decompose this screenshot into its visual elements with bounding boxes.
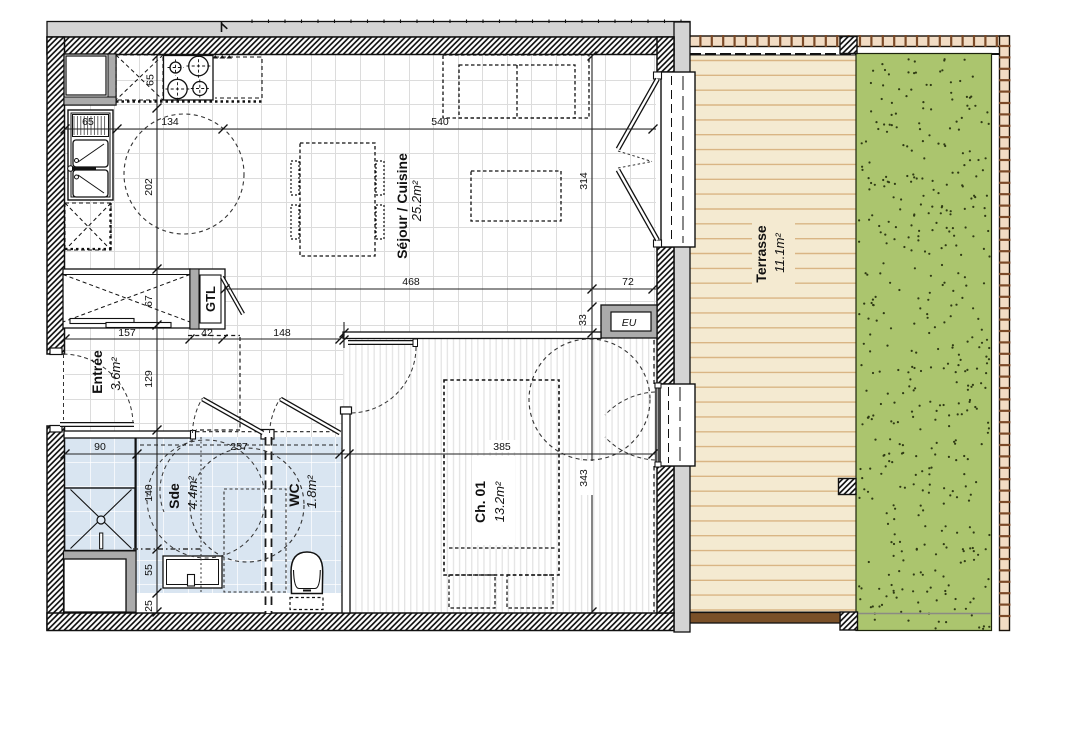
svg-text:4.4m²: 4.4m² — [185, 476, 200, 510]
svg-text:Ch. 01: Ch. 01 — [472, 481, 488, 523]
svg-text:148: 148 — [273, 327, 291, 339]
svg-text:Terrasse: Terrasse — [753, 225, 769, 283]
svg-text:3.6m²: 3.6m² — [108, 357, 123, 391]
svg-text:42: 42 — [201, 327, 213, 339]
svg-text:25.2m²: 25.2m² — [409, 180, 424, 222]
svg-text:55: 55 — [143, 564, 155, 576]
svg-text:WC: WC — [286, 483, 302, 506]
svg-text:468: 468 — [402, 276, 420, 288]
svg-text:385: 385 — [493, 441, 511, 453]
svg-text:157: 157 — [118, 327, 136, 339]
svg-text:72: 72 — [622, 276, 634, 288]
svg-text:67: 67 — [143, 295, 155, 307]
svg-text:Sde: Sde — [166, 483, 182, 509]
svg-text:65: 65 — [145, 74, 157, 86]
svg-text:65: 65 — [82, 116, 94, 128]
svg-text:Séjour / Cuisine: Séjour / Cuisine — [394, 153, 410, 259]
svg-text:202: 202 — [143, 178, 155, 196]
svg-text:GTL: GTL — [203, 286, 218, 312]
svg-text:343: 343 — [578, 469, 590, 487]
svg-text:129: 129 — [143, 370, 155, 388]
svg-text:33: 33 — [577, 314, 589, 326]
svg-text:EU: EU — [622, 317, 637, 329]
svg-text:1.8m²: 1.8m² — [304, 475, 319, 509]
svg-text:11.1m²: 11.1m² — [772, 233, 787, 273]
svg-text:90: 90 — [94, 441, 106, 453]
svg-text:134: 134 — [161, 116, 179, 128]
svg-text:Entrée: Entrée — [89, 350, 105, 394]
svg-text:13.2m²: 13.2m² — [492, 481, 507, 522]
svg-text:25: 25 — [143, 600, 155, 612]
svg-text:540: 540 — [431, 116, 449, 128]
svg-text:140: 140 — [143, 484, 155, 502]
svg-text:257: 257 — [230, 441, 248, 453]
svg-text:314: 314 — [578, 172, 590, 190]
